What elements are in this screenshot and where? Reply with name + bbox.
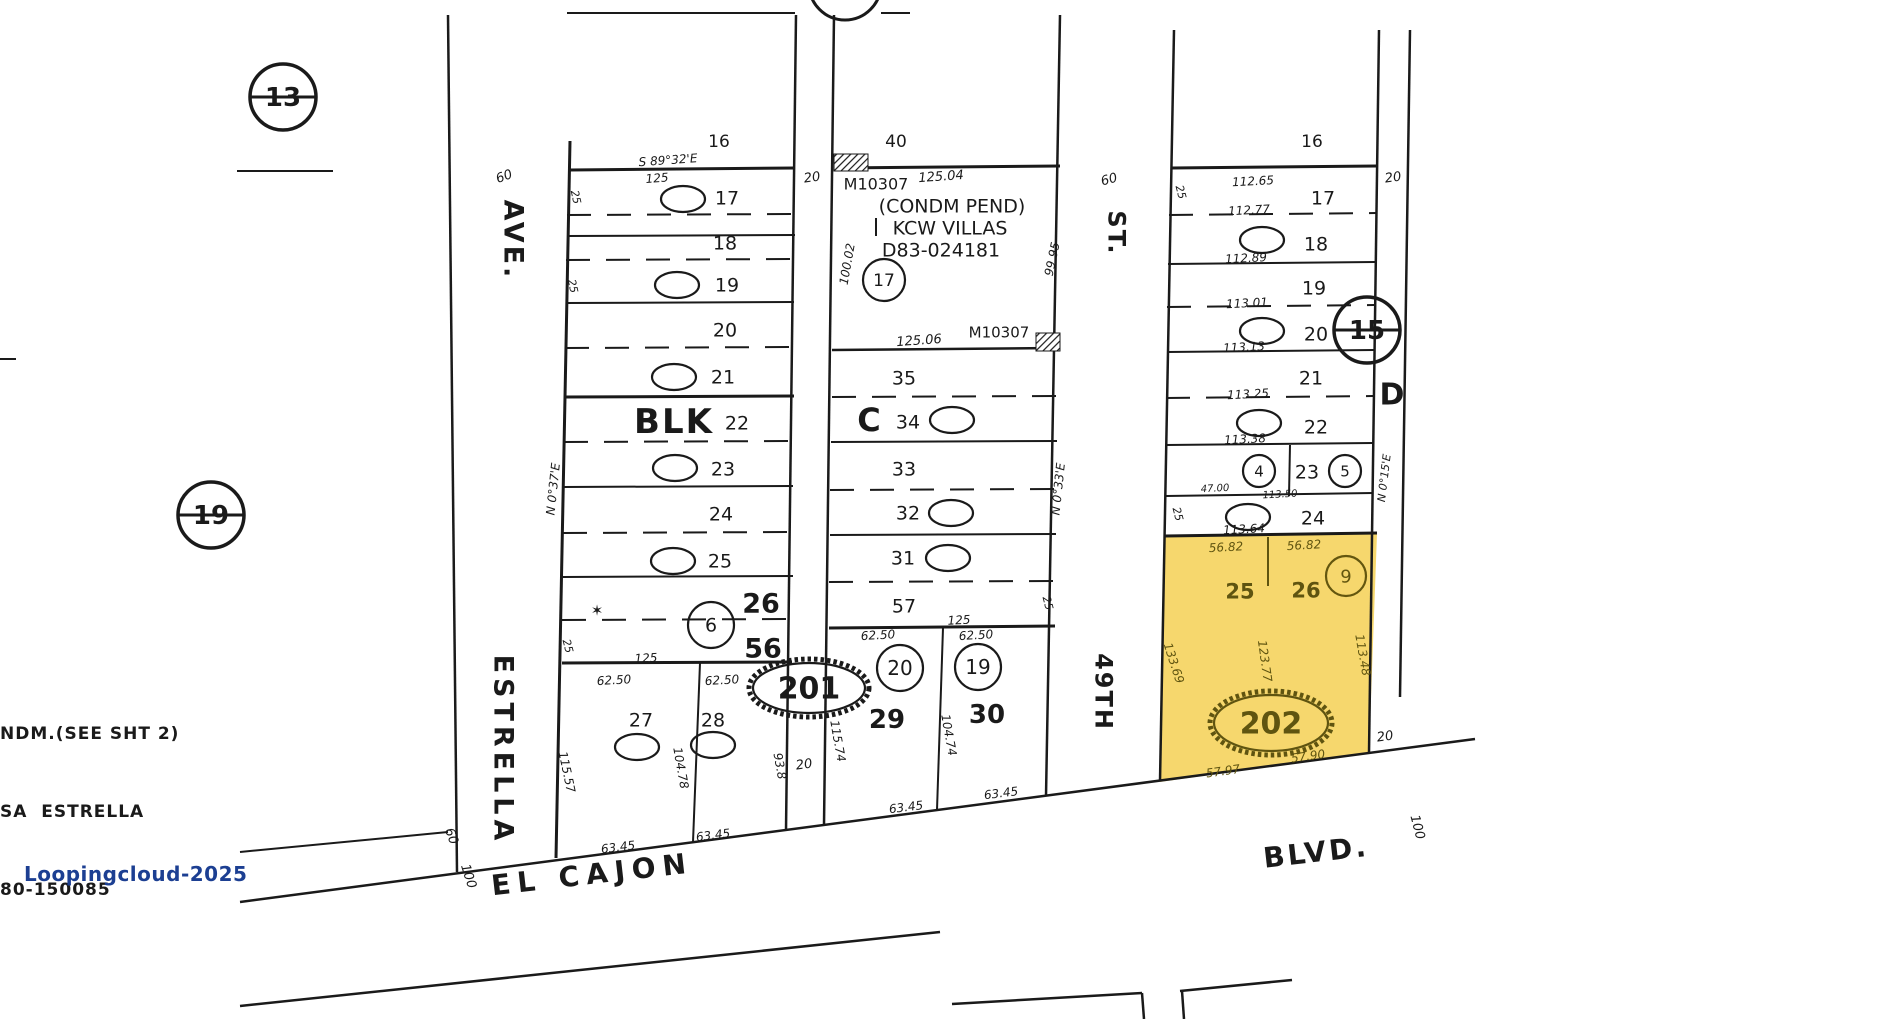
lot-number-label: 23 [1295, 462, 1319, 484]
dimension-label: 20 [803, 169, 821, 186]
street-label-estrella-ave: AVE. [498, 200, 529, 281]
lot-number-label: 18 [713, 233, 737, 255]
map-line [1046, 15, 1060, 796]
survey-hatch-marker [1036, 333, 1060, 351]
lot-split-dashed-line [1169, 213, 1376, 215]
lot-marker-oval [655, 272, 699, 298]
dimension-label: 113.64 [1223, 521, 1266, 537]
lot-number-label: 26 [1291, 578, 1320, 602]
lot-number-label: 20 [713, 320, 737, 342]
map-line [786, 15, 796, 830]
lot-number-label: 21 [711, 367, 735, 389]
lot-split-dashed-line [1166, 396, 1373, 398]
dimension-label: 25 [1173, 184, 1189, 201]
lot-marker-number: 6 [1243, 0, 1253, 4]
lot-marker-number: 8 [708, 0, 718, 4]
bearing-label: S 89°32'E [638, 151, 698, 169]
lot-marker-number: 9 [1340, 566, 1351, 587]
lot-marker-number: 3 [1254, 0, 1264, 4]
parcel-map-svg: 123456781713121120191234569131915201202A… [0, 0, 1895, 1019]
lot-marker-number: 5 [668, 0, 678, 4]
condo-pending-note: (CONDM PEND) [879, 196, 1026, 218]
lot-number-label: 20 [1304, 324, 1328, 346]
lot-marker-oval [926, 545, 970, 571]
dimension-label: 20 [795, 756, 813, 773]
lot-number-label: 22 [725, 413, 749, 435]
lot-split-dashed-line [565, 347, 794, 348]
lot-marker-number: 7 [632, 0, 642, 4]
dimension-label: 62.50 [596, 672, 631, 688]
dimension-label: 100 [1407, 813, 1428, 841]
lot-number-label: 35 [892, 368, 916, 390]
dimension-label: 113.13 [1223, 339, 1266, 355]
map-line [1180, 980, 1292, 991]
lot-marker-oval [930, 407, 974, 433]
map-line [1182, 991, 1184, 1019]
lot-marker-number: 6 [705, 615, 717, 637]
dimension-label: 113.25 [1227, 386, 1270, 402]
plat-map-page: 123456781713121120191234569131915201202A… [0, 0, 1895, 1019]
block-label-c: C [857, 401, 880, 439]
map-line [831, 441, 1057, 442]
lot-marker-oval [652, 364, 696, 390]
lot-number-label: 31 [891, 548, 915, 570]
subdivision-name: KCW VILLAS [893, 218, 1008, 240]
lot-number-label: 25 [708, 551, 732, 573]
dimension-label: 125 [947, 613, 971, 628]
map-line [832, 348, 1058, 350]
dimension-label: 25 [1040, 595, 1056, 612]
dimension-label: 113.50 [1262, 489, 1298, 502]
note-line: SA ESTRELLA [0, 799, 179, 825]
lot-number-label: 57 [892, 596, 916, 618]
survey-hatch-marker [834, 154, 868, 171]
map-line [563, 576, 793, 577]
condo-reference-note: NDM.(SEE SHT 2) SA ESTRELLA 80-150085 [0, 669, 179, 955]
lot-number-label: 17 [715, 188, 739, 210]
dimension-label: 112.77 [1228, 202, 1271, 218]
dimension-label: 125 [645, 170, 669, 186]
block-label-blk: BLK [634, 402, 714, 442]
bearing-label: N 0°15'E [1375, 453, 1394, 502]
map-line [565, 396, 794, 397]
street-label-estrella: ESTRELLA [488, 655, 519, 846]
lot-marker-number: 5 [1340, 462, 1350, 480]
ref-circle-13-number: 13 [265, 83, 301, 113]
dimension-label: 115.74 [827, 719, 848, 763]
map-line [567, 235, 795, 236]
lot-number-label: 28 [701, 710, 725, 732]
lot-number-label: 17 [1311, 188, 1335, 210]
street-label-49th-st: ST. [1103, 210, 1131, 255]
lot-number-label: 22 [1304, 417, 1328, 439]
map-line [830, 534, 1056, 535]
dimension-label: 125.04 [918, 168, 964, 186]
lot-number-label: 16 [708, 132, 730, 152]
map-line [566, 302, 794, 303]
map-line [1166, 443, 1373, 445]
lot-split-dashed-line [832, 396, 1058, 397]
lot-number-label: 21 [1299, 368, 1323, 390]
map-line [240, 739, 1475, 902]
map-line [952, 993, 1142, 1004]
dimension-label: 100 [457, 862, 479, 890]
map-line [570, 168, 795, 170]
lot-marker-number: 19 [965, 655, 990, 679]
dimension-label: 56.82 [1208, 539, 1243, 555]
map-line [448, 15, 457, 872]
lot-marker-oval [653, 455, 697, 481]
map-line [1172, 166, 1377, 168]
parcel-oval-202-number: 202 [1240, 707, 1303, 742]
dimension-label: 56.82 [1286, 537, 1321, 553]
bearing-label: N 0°37'E [543, 462, 562, 516]
lot-marker-number: 11 [938, 0, 958, 4]
lot-number-label: 19 [1302, 278, 1326, 300]
note-line: NDM.(SEE SHT 2) [0, 721, 179, 747]
lot-split-dashed-line [567, 214, 795, 215]
lot-number-label: 23 [711, 459, 735, 481]
dimension-label: 112.65 [1232, 173, 1275, 189]
lot-number-label: 40 [885, 132, 907, 152]
dimension-label: 104.78 [670, 746, 691, 790]
map-line [1369, 30, 1379, 753]
lot-number-label: M10307 [969, 323, 1030, 341]
map-line [240, 932, 940, 1006]
lot-number-label: 19 [715, 275, 739, 297]
dimension-label: 20 [1376, 728, 1394, 745]
dimension-label: 112.89 [1225, 250, 1268, 266]
document-number: D83-024181 [882, 240, 1000, 262]
monument-star-icon: ✶ [591, 601, 604, 619]
lot-marker-oval [615, 734, 659, 760]
ref-circle-15-number: 15 [1349, 316, 1385, 346]
lot-number-label: M10307 [844, 175, 909, 194]
ref-circle-partial [809, 0, 881, 20]
map-line [240, 832, 448, 852]
lot-marker-oval [651, 548, 695, 574]
lot-split-dashed-line [830, 489, 1056, 490]
dimension-label: 60 [1099, 171, 1119, 190]
dimension-label: 125.06 [896, 332, 942, 350]
lot-number-label: 26 [742, 588, 780, 619]
map-line [1142, 993, 1144, 1019]
lot-number-label: 34 [896, 412, 920, 434]
lot-split-dashed-line [566, 259, 794, 260]
ref-circle-19-number: 19 [193, 501, 229, 531]
lot-marker-oval [1240, 227, 1284, 253]
dimension-label: 62.50 [704, 672, 739, 688]
map-line [1400, 30, 1410, 697]
dimension-label: 25 [560, 638, 576, 655]
dimension-label: 99.95 [1042, 241, 1063, 278]
dimension-label: 125 [634, 651, 658, 666]
dimension-label: 62.50 [860, 627, 895, 643]
map-line [829, 626, 1055, 628]
lot-split-dashed-line [563, 532, 793, 533]
lot-marker-oval [661, 186, 705, 212]
dimension-label: 25 [1170, 506, 1186, 523]
lot-number-label: 27 [629, 710, 653, 732]
lot-marker-number: 17 [873, 271, 895, 291]
lot-split-dashed-line [829, 581, 1055, 582]
dimension-label: 60 [494, 167, 515, 187]
lot-number-label: 33 [892, 459, 916, 481]
dimension-label: 62.50 [958, 627, 993, 643]
lot-number-label: 18 [1304, 234, 1328, 256]
dimension-label: 100.02 [837, 242, 858, 286]
map-line [836, 166, 1060, 168]
dimension-label: 104.74 [938, 713, 959, 757]
map-line [1168, 262, 1375, 264]
lot-number-label: 25 [1225, 579, 1254, 603]
lot-number-label: 29 [869, 705, 905, 735]
watermark: Loopingcloud-2025 [24, 862, 247, 886]
dimension-label: 20 [1384, 169, 1402, 186]
street-label-blvd: BLVD. [1262, 830, 1371, 875]
lot-number-label: 24 [709, 504, 733, 526]
lot-number-label: 16 [1301, 132, 1323, 152]
dimension-label: 47.00 [1200, 483, 1229, 495]
dimension-label: 63.45 [695, 826, 731, 844]
map-line [564, 486, 793, 487]
lot-marker-oval [929, 500, 973, 526]
parcel-oval-201-number: 201 [778, 672, 841, 707]
lot-marker-number: 20 [887, 656, 912, 680]
dimension-label: 113.01 [1226, 295, 1269, 311]
block-label-d: D [1380, 378, 1405, 413]
street-label-49th: 49TH [1090, 653, 1118, 731]
dimension-label: 113.38 [1224, 431, 1267, 447]
lot-number-label: 30 [969, 700, 1005, 730]
lot-marker-number: 4 [1254, 462, 1264, 480]
lot-number-label: 32 [896, 503, 920, 525]
lot-number-label: 56 [744, 633, 782, 664]
lot-number-label: 24 [1301, 508, 1325, 530]
